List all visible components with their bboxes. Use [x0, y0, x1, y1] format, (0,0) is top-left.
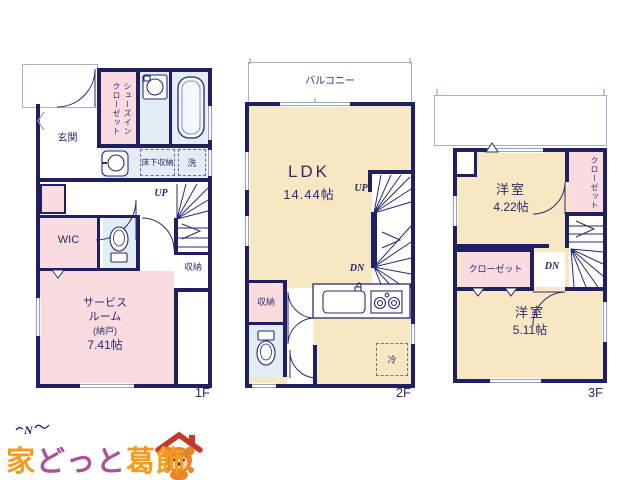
- logo-part-3: 葛飾: [126, 446, 186, 478]
- up-label-1f: UP: [148, 188, 174, 200]
- stairs-1f: [177, 184, 208, 247]
- service-room-line2: ルーム: [56, 310, 154, 324]
- fridge-box: 冷: [376, 343, 408, 376]
- closet-vertical-label: クローゼット: [572, 156, 600, 210]
- storage-label-2f: 収納: [249, 297, 283, 307]
- wic-label: WIC: [40, 234, 97, 247]
- service-room-line3: (納戸): [56, 324, 154, 338]
- kitchen-counter-icon: [313, 283, 410, 318]
- bedroom1-label: 洋室: [480, 183, 542, 198]
- service-room-line4: 7.41帖: [56, 338, 154, 352]
- underfloor-storage-box: 床下収納: [140, 149, 175, 176]
- floor-label-3f: 3F: [573, 386, 603, 401]
- bedroom2-size-label: 5.11帖: [496, 324, 564, 338]
- stairs-3f: [569, 221, 603, 287]
- sink-icon: [102, 151, 128, 176]
- toilet-icon-2f: [257, 331, 275, 365]
- service-room-label: サービス ルーム (納戸) 7.41帖: [56, 296, 154, 352]
- toilet-icon-1f: [110, 227, 128, 262]
- balcony-label-2f: バルコニー: [300, 76, 360, 88]
- laundry-box: 洗: [178, 149, 206, 176]
- service-room-line1: サービス: [56, 296, 154, 310]
- stairs-2f: [374, 175, 411, 287]
- floor-label-2f: 2F: [381, 386, 411, 401]
- bedroom2-label: 洋室: [499, 306, 561, 321]
- ldk-size-label: 14.44帖: [268, 188, 350, 203]
- washer-icon: [143, 75, 167, 99]
- laundry-label: 洗: [187, 156, 196, 169]
- logo-part-1: 家: [6, 446, 36, 478]
- compass-icon: N: [16, 423, 49, 437]
- ldk-label: LDK: [273, 162, 345, 182]
- bathtub-icon: [178, 77, 204, 138]
- dn-label-3f: DN: [540, 261, 564, 273]
- closet-horizontal-label: クローゼット: [461, 264, 530, 274]
- storage-label-1f: 収納: [176, 262, 210, 272]
- logo-part-2: どっと: [36, 446, 126, 478]
- dn-label-2f: DN: [344, 263, 370, 275]
- compass-n-glyph: N: [23, 423, 34, 437]
- company-logo: 家どっと葛飾: [6, 438, 186, 480]
- shoes-in-closet-label: シューズインクローゼット: [103, 78, 133, 140]
- entrance-door-chevron: [38, 112, 44, 130]
- floorplan-page: 床下収納 洗 冷: [0, 0, 640, 480]
- fridge-label: 冷: [387, 353, 396, 366]
- floor-label-1f: 1F: [180, 386, 210, 401]
- up-label-2f: UP: [348, 183, 374, 195]
- underfloor-storage-label: 床下収納: [142, 158, 174, 167]
- genkan-label: 玄関: [45, 133, 90, 145]
- bedroom1-size-label: 4.22帖: [477, 201, 545, 215]
